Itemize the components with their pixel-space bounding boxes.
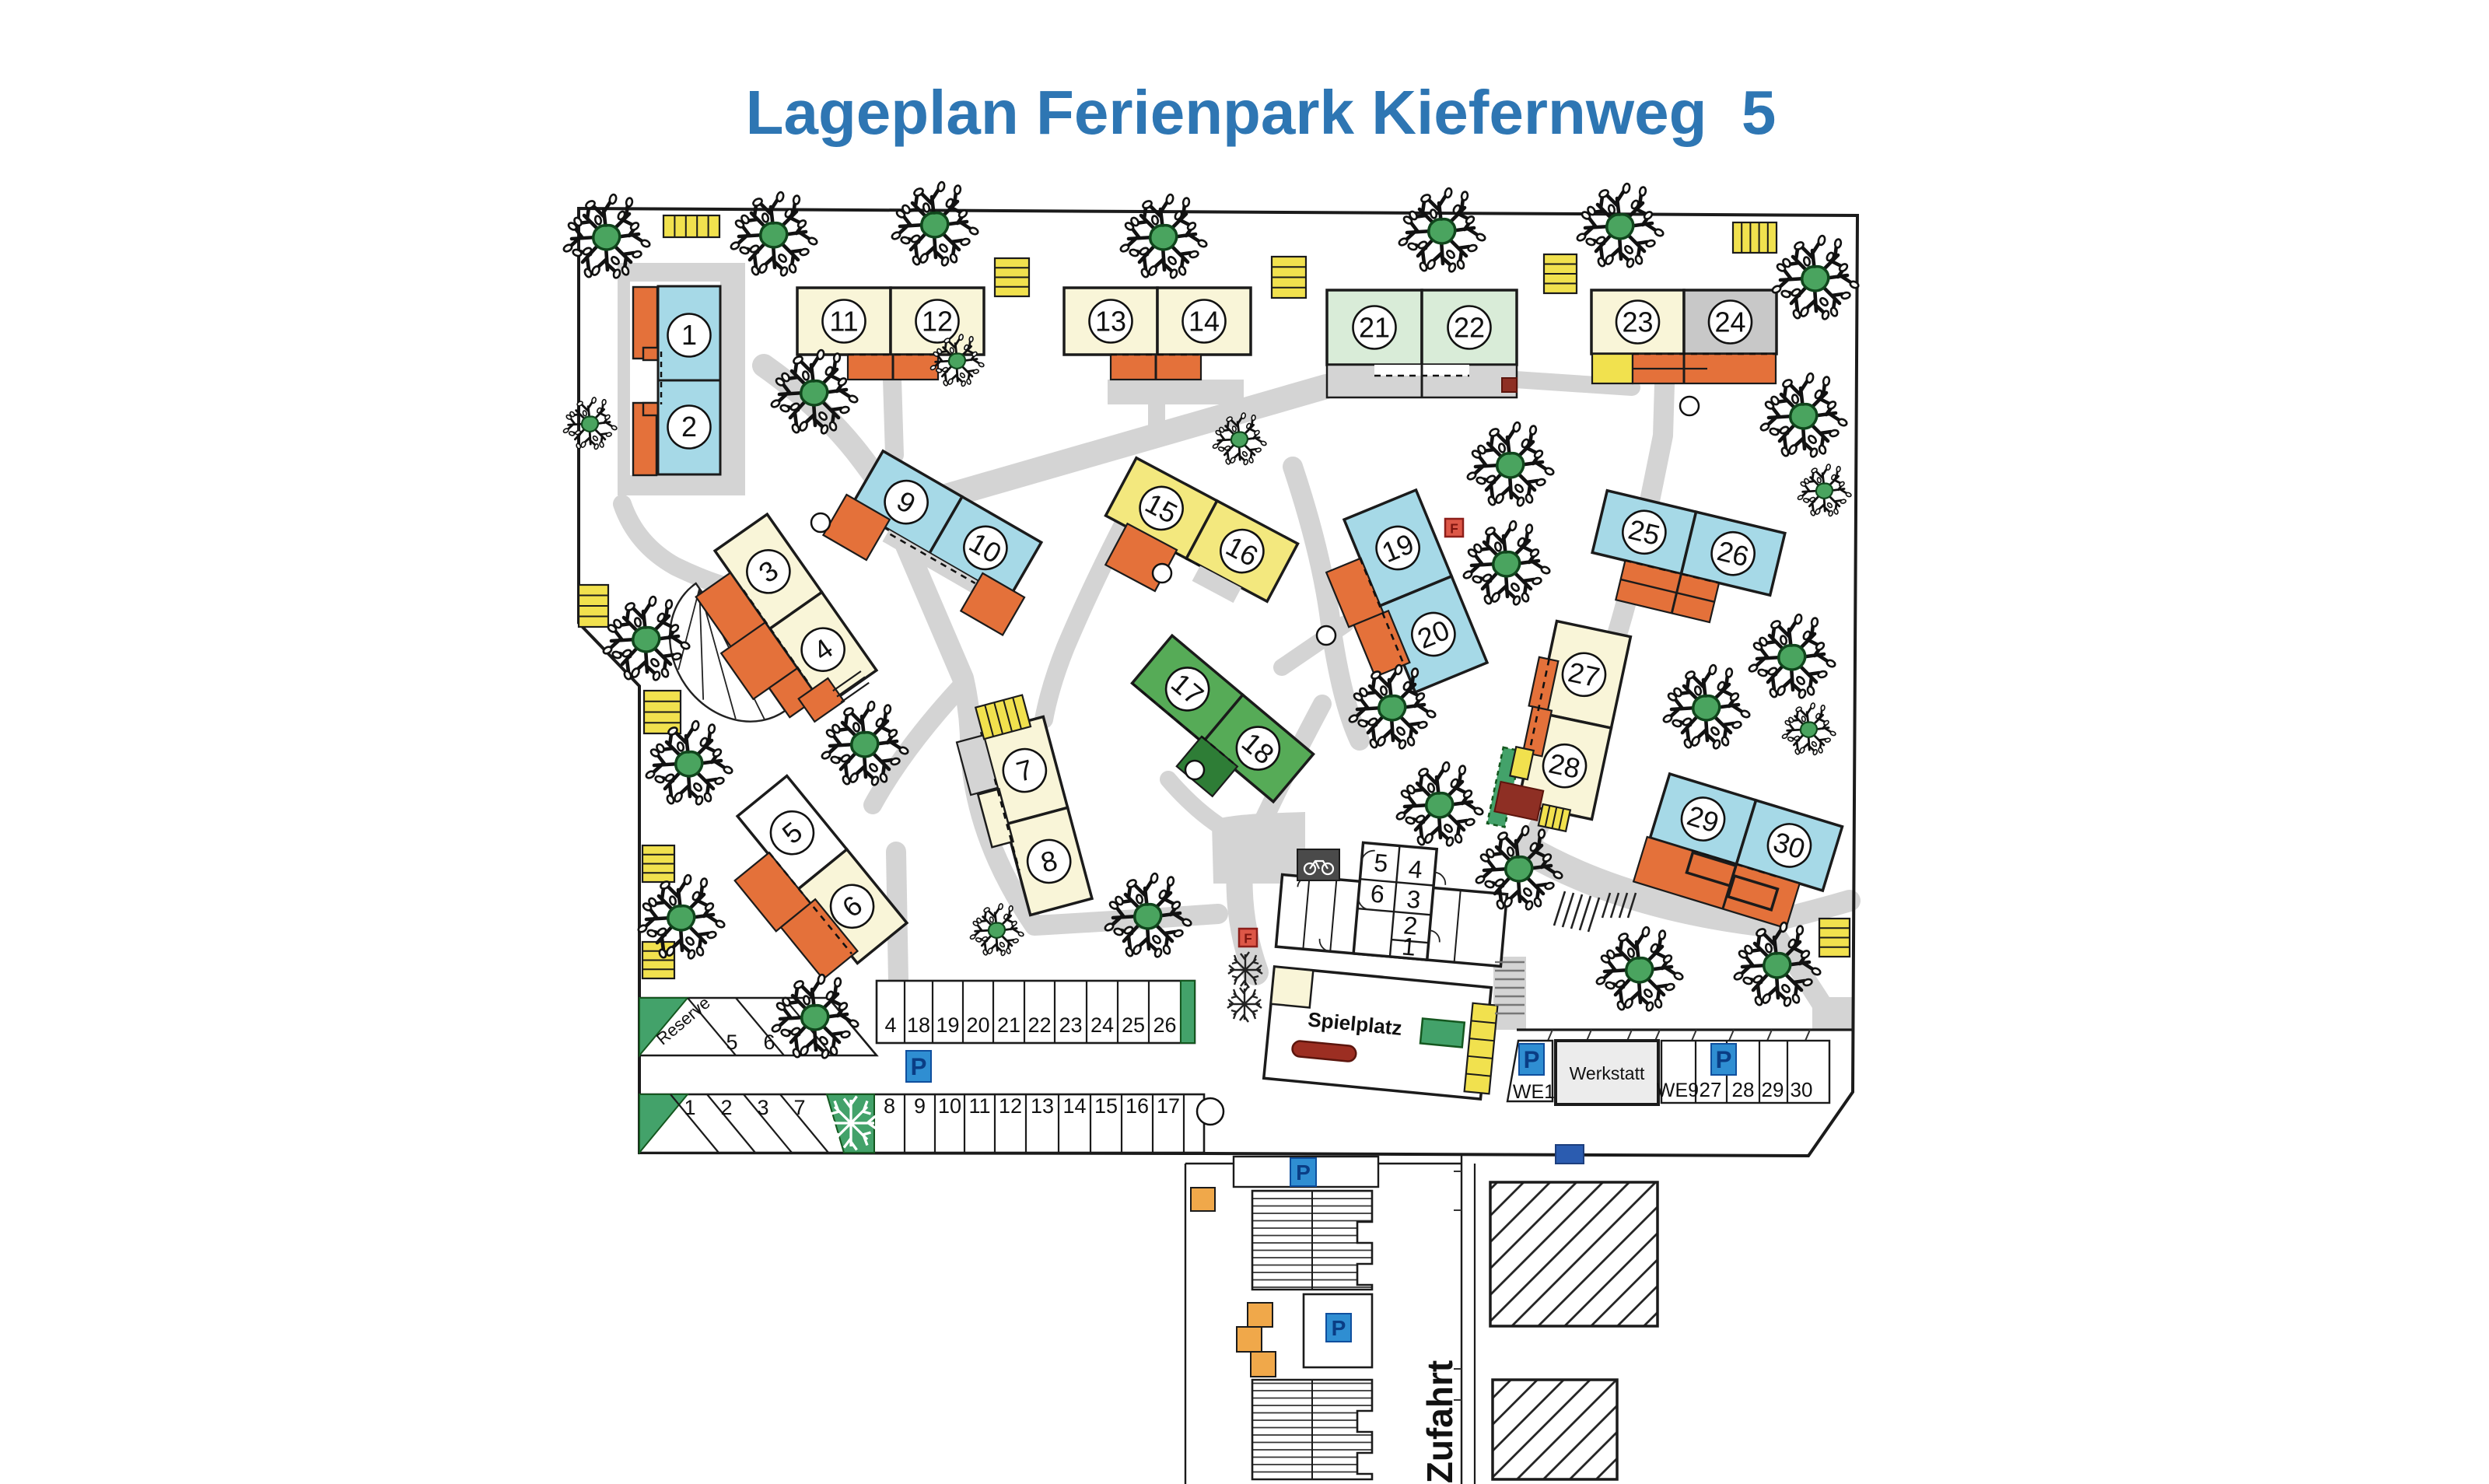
svg-text:7: 7 xyxy=(793,1096,805,1119)
svg-text:12: 12 xyxy=(922,306,953,338)
svg-text:18: 18 xyxy=(907,1013,930,1037)
svg-text:1: 1 xyxy=(681,319,697,351)
svg-text:21: 21 xyxy=(1359,312,1390,344)
svg-text:3: 3 xyxy=(757,1096,768,1119)
svg-text:P: P xyxy=(1296,1160,1311,1185)
svg-text:F: F xyxy=(1244,930,1252,946)
svg-text:4: 4 xyxy=(884,1013,896,1037)
svg-text:P: P xyxy=(1716,1046,1732,1073)
svg-text:27: 27 xyxy=(1566,656,1603,693)
svg-text:26: 26 xyxy=(1153,1013,1176,1037)
svg-text:2: 2 xyxy=(681,411,697,443)
svg-text:10: 10 xyxy=(938,1094,961,1118)
svg-text:Lageplan Ferienpark Kiefernweg: Lageplan Ferienpark Kiefernweg 5 xyxy=(746,78,1777,147)
svg-text:11: 11 xyxy=(968,1094,990,1118)
svg-text:28: 28 xyxy=(1732,1078,1755,1101)
svg-text:24: 24 xyxy=(1714,306,1745,338)
svg-text:8: 8 xyxy=(884,1094,895,1118)
svg-text:23: 23 xyxy=(1059,1013,1082,1037)
svg-text:17: 17 xyxy=(1157,1094,1180,1118)
svg-text:19: 19 xyxy=(936,1013,959,1037)
svg-text:22: 22 xyxy=(1027,1013,1051,1037)
svg-text:6: 6 xyxy=(1369,880,1385,908)
svg-text:27: 27 xyxy=(1700,1078,1722,1101)
svg-text:14: 14 xyxy=(1062,1094,1086,1118)
svg-text:28: 28 xyxy=(1546,747,1584,784)
svg-text:Zufahrt: Zufahrt xyxy=(1420,1360,1460,1483)
svg-text:4: 4 xyxy=(1407,855,1423,884)
svg-text:P: P xyxy=(1332,1316,1346,1340)
svg-text:15: 15 xyxy=(1094,1094,1118,1118)
svg-text:22: 22 xyxy=(1454,312,1485,344)
svg-text:9: 9 xyxy=(914,1094,926,1118)
svg-text:P: P xyxy=(1524,1046,1540,1073)
svg-text:F: F xyxy=(1450,520,1458,536)
svg-text:21: 21 xyxy=(997,1013,1020,1037)
svg-text:3: 3 xyxy=(1406,885,1422,914)
svg-text:2: 2 xyxy=(720,1096,732,1119)
svg-text:WE1: WE1 xyxy=(1513,1081,1555,1103)
svg-text:30: 30 xyxy=(1791,1078,1813,1101)
svg-text:P: P xyxy=(911,1053,927,1080)
svg-text:13: 13 xyxy=(1095,306,1126,338)
svg-text:Werkstatt: Werkstatt xyxy=(1570,1063,1645,1083)
svg-text:23: 23 xyxy=(1622,306,1653,338)
svg-text:5: 5 xyxy=(1373,849,1389,877)
svg-text:6: 6 xyxy=(763,1031,775,1054)
svg-text:1: 1 xyxy=(1401,932,1417,961)
svg-text:24: 24 xyxy=(1090,1013,1114,1037)
svg-text:14: 14 xyxy=(1188,306,1220,338)
svg-text:20: 20 xyxy=(966,1013,989,1037)
svg-text:16: 16 xyxy=(1125,1094,1149,1118)
svg-text:5: 5 xyxy=(726,1031,737,1054)
svg-text:25: 25 xyxy=(1122,1013,1145,1037)
svg-text:WE9: WE9 xyxy=(1657,1080,1699,1101)
svg-text:13: 13 xyxy=(1031,1094,1054,1118)
svg-text:29: 29 xyxy=(1762,1078,1784,1101)
svg-text:12: 12 xyxy=(999,1094,1022,1118)
svg-text:1: 1 xyxy=(684,1096,695,1119)
svg-text:11: 11 xyxy=(829,306,858,338)
